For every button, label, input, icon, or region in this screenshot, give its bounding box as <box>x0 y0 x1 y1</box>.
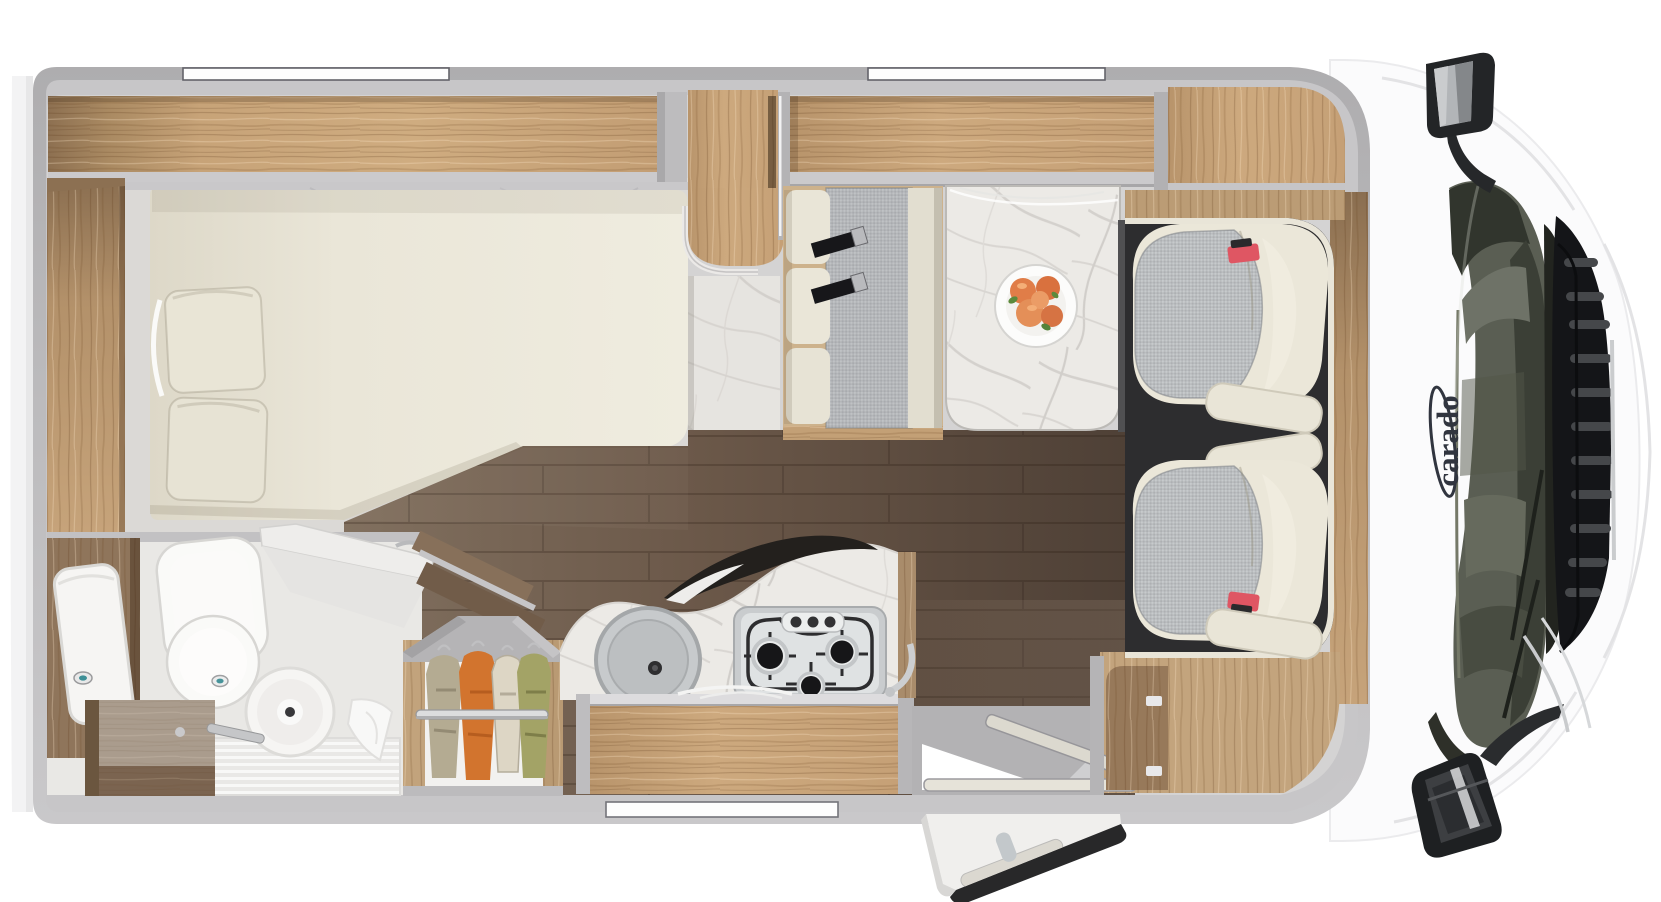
svg-text:carado: carado <box>1430 395 1465 486</box>
